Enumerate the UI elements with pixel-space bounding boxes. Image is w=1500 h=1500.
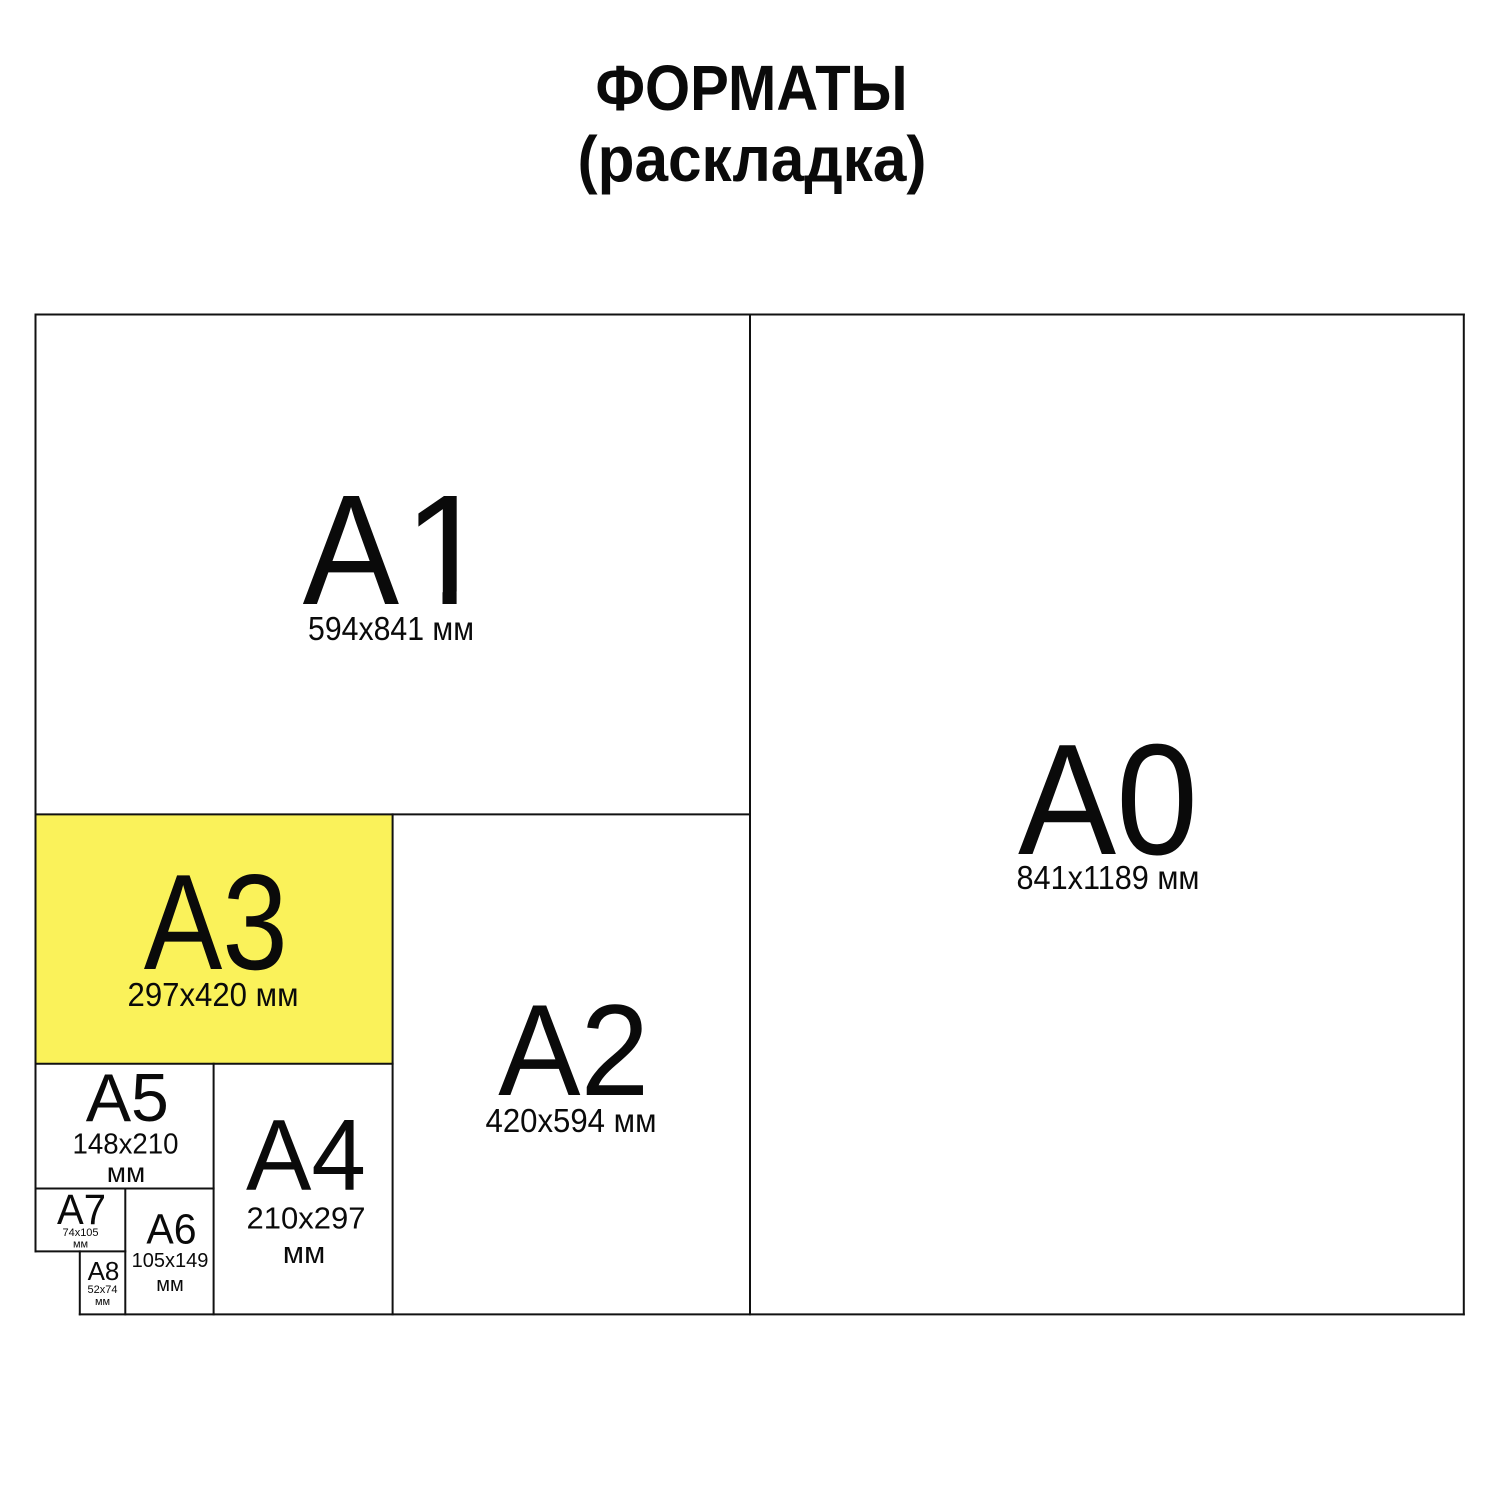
svg-text:210х297: 210х297 (247, 1201, 366, 1236)
svg-text:мм: мм (156, 1274, 184, 1296)
svg-text:420х594 мм: 420х594 мм (486, 1102, 657, 1139)
svg-text:ФОРМАТЫ: ФОРМАТЫ (596, 52, 908, 124)
svg-text:74х105: 74х105 (62, 1227, 98, 1239)
svg-text:148х210: 148х210 (73, 1129, 179, 1161)
svg-text:мм: мм (283, 1235, 326, 1270)
svg-text:А8: А8 (88, 1256, 120, 1286)
svg-text:мм: мм (107, 1157, 146, 1188)
svg-text:А5: А5 (86, 1060, 169, 1136)
svg-text:мм: мм (73, 1239, 88, 1251)
svg-text:А4: А4 (246, 1100, 366, 1212)
svg-text:105х149: 105х149 (132, 1250, 209, 1272)
svg-text:А6: А6 (146, 1206, 196, 1254)
svg-text:841х1189 мм: 841х1189 мм (1017, 859, 1200, 896)
svg-text:594х841 мм: 594х841 мм (308, 610, 474, 647)
svg-text:мм: мм (95, 1296, 110, 1308)
svg-text:52х74: 52х74 (88, 1284, 118, 1296)
svg-text:297х420 мм: 297х420 мм (128, 976, 299, 1013)
svg-text:(раскладка): (раскладка) (578, 123, 927, 195)
